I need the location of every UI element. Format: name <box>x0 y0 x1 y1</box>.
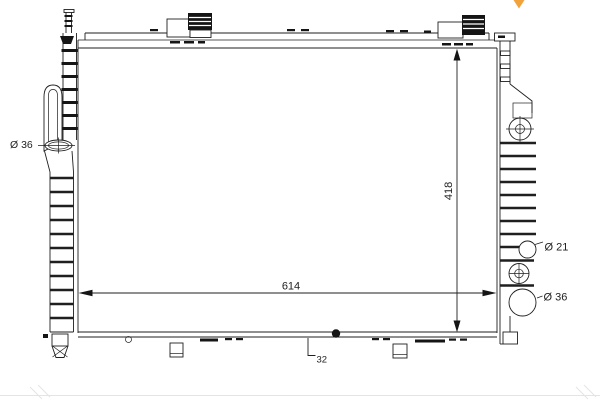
arrow-down-icon <box>454 321 461 333</box>
left-inlet-diameter-label: Ø 36 <box>10 139 33 151</box>
bolt-port-circle <box>509 264 529 284</box>
right-upper-port-label: Ø 21 <box>545 242 569 254</box>
port-circle-36 <box>509 289 543 316</box>
width-dimension-label: 614 <box>282 281 300 293</box>
left-tank-lower <box>43 172 74 358</box>
bottom-edge-details <box>126 329 468 358</box>
drain-plug <box>52 334 68 358</box>
top-tank <box>78 29 497 48</box>
height-dimension-label: 418 <box>443 182 455 200</box>
dimension-width: 614 <box>79 281 497 297</box>
right-lower-port-label: Ø 36 <box>544 292 568 304</box>
bottom-bracket-left <box>170 343 183 357</box>
bottom-bracket-right <box>393 344 407 358</box>
right-tank <box>495 33 544 344</box>
product-image: 418 614 32 Ø 36 Ø 21 Ø 36 <box>0 0 600 400</box>
right-mounting-bracket <box>438 15 485 46</box>
bottom-stud-dot <box>332 329 340 337</box>
orange-watermark-icon <box>514 0 525 9</box>
left-tank-upper <box>60 10 78 141</box>
faint-watermark-row <box>0 385 600 399</box>
port-circle-21 <box>519 241 543 258</box>
arrow-right-icon <box>483 290 497 297</box>
radiator-technical-drawing: 418 614 32 Ø 36 Ø 21 Ø 36 <box>0 0 600 400</box>
top-port-circle <box>506 116 534 142</box>
arrow-up-icon <box>454 49 461 61</box>
dimension-height: 418 <box>443 49 461 332</box>
left-tank-cap <box>60 36 74 44</box>
left-mounting-bracket <box>167 13 212 44</box>
arrow-left-icon <box>79 290 93 297</box>
dimension-depth: 32 <box>308 338 327 366</box>
depth-dimension-label: 32 <box>317 355 328 366</box>
